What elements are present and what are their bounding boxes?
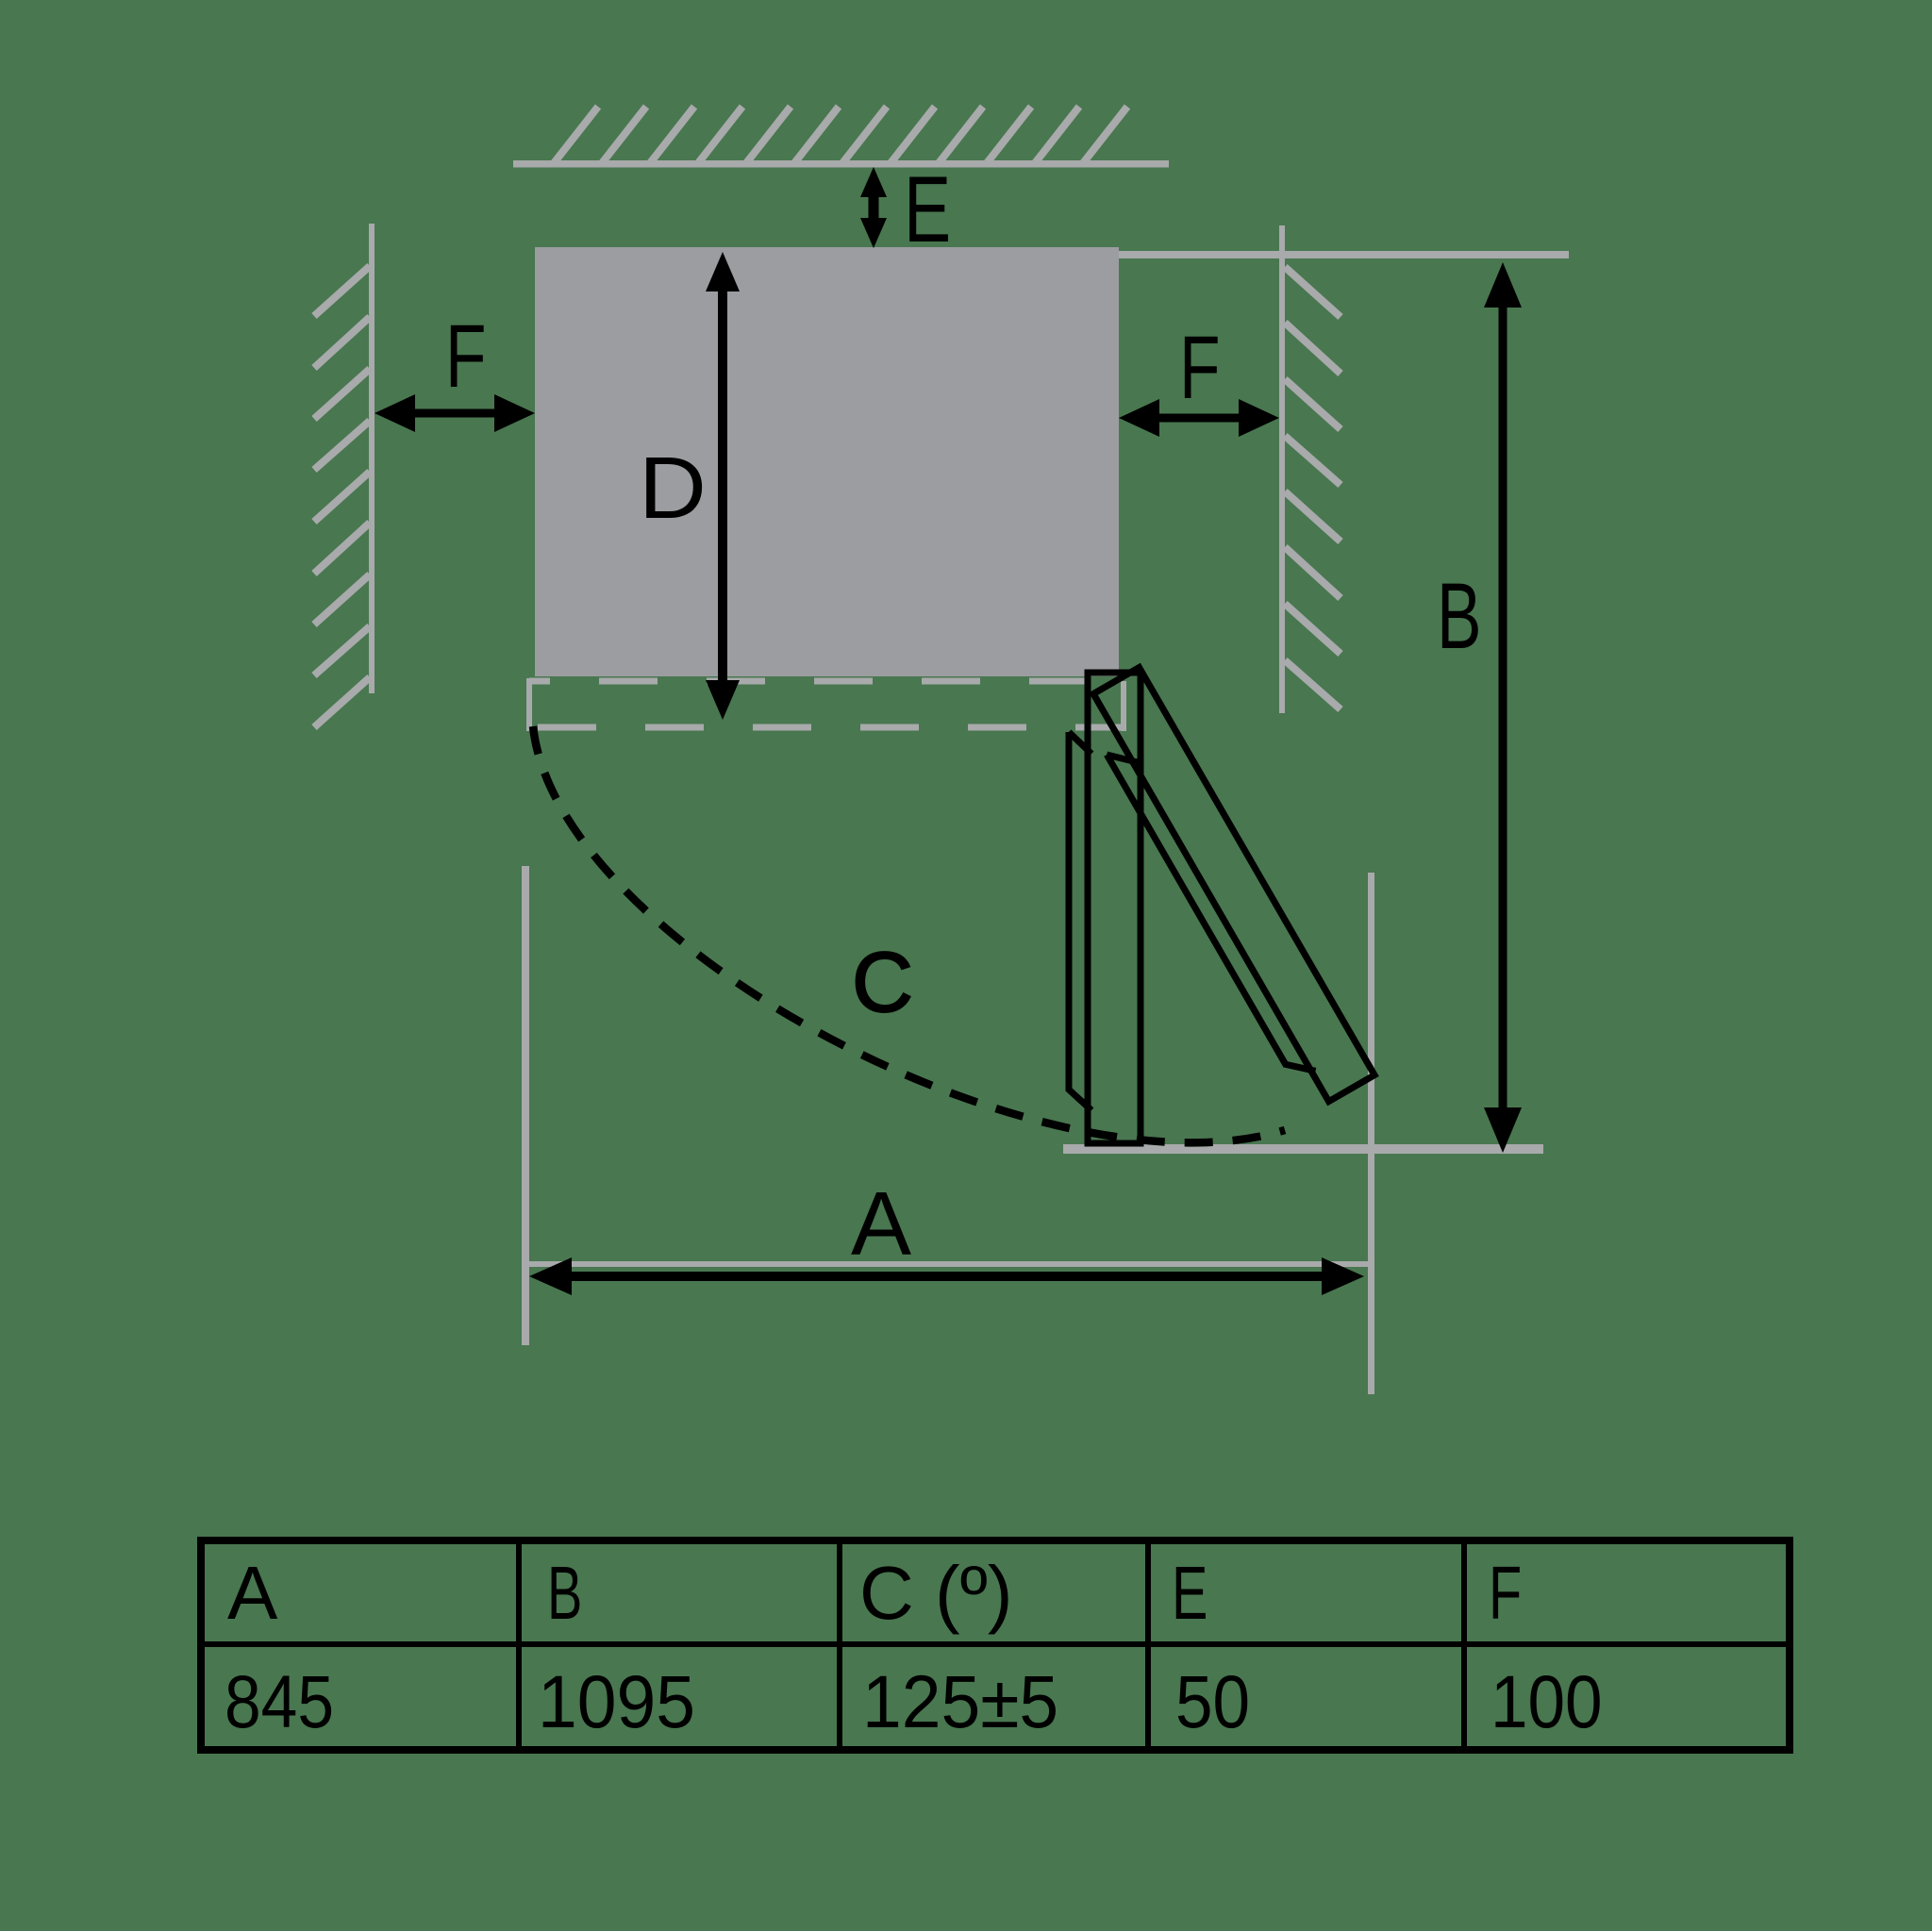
- svg-text:E: E: [1172, 1551, 1207, 1636]
- svg-text:D: D: [639, 440, 707, 537]
- svg-text:F: F: [1179, 317, 1221, 417]
- svg-text:F: F: [445, 306, 487, 406]
- svg-text:E: E: [904, 157, 951, 261]
- svg-text:100: 100: [1491, 1660, 1603, 1743]
- svg-text:C (º): C (º): [859, 1551, 1013, 1635]
- svg-text:845: 845: [225, 1660, 334, 1743]
- svg-text:1095: 1095: [538, 1660, 695, 1743]
- svg-text:125±5: 125±5: [862, 1660, 1058, 1743]
- svg-text:B: B: [547, 1550, 582, 1635]
- svg-text:A: A: [851, 1174, 911, 1274]
- svg-text:F: F: [1489, 1551, 1522, 1636]
- svg-text:50: 50: [1175, 1660, 1250, 1743]
- svg-text:C: C: [852, 936, 913, 1030]
- svg-text:B: B: [1437, 565, 1482, 669]
- svg-text:A: A: [227, 1551, 278, 1635]
